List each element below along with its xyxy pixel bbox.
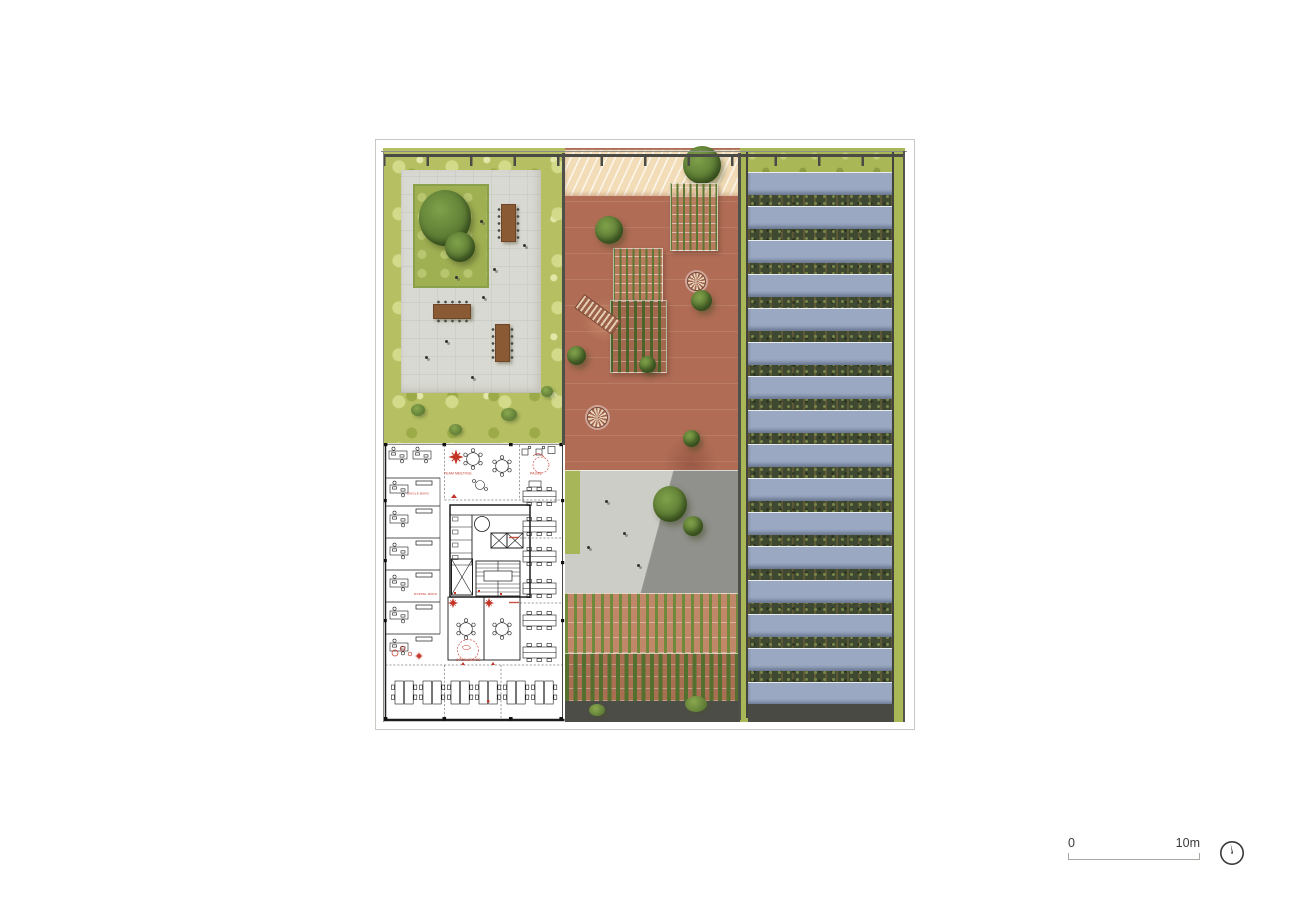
frame-beam — [738, 153, 741, 720]
zone-dashed-lines — [386, 445, 563, 719]
solar-panel-row — [748, 172, 894, 195]
person — [605, 500, 608, 503]
solar-panel-rows — [748, 172, 894, 700]
page: { "page": { "background": "#ffffff", "co… — [0, 0, 1290, 911]
solar-panel-row — [748, 648, 894, 671]
bush — [501, 408, 517, 421]
person — [523, 244, 526, 247]
spiral-stair — [687, 272, 706, 291]
green-roof-zone — [383, 148, 565, 443]
floorplan-labels: TEAM MEETING PAUSE SINGLE BÜRO DOPPEL BÜ… — [407, 472, 543, 663]
courtyard-planting — [565, 470, 580, 554]
tree — [683, 516, 703, 536]
person — [482, 296, 485, 299]
ground-courtyard — [565, 470, 740, 593]
label-open-office: OPEN OFFICE — [456, 658, 481, 662]
slab-edge — [565, 593, 740, 594]
floor-plan-zone: TEAM MEETING PAUSE SINGLE BÜRO DOPPEL BÜ… — [383, 443, 565, 722]
person — [623, 532, 626, 535]
pergola-garden — [565, 653, 740, 701]
bush — [411, 404, 425, 416]
solar-panel-row — [748, 274, 894, 297]
red-annotations — [392, 451, 549, 702]
solar-panel-row — [748, 682, 894, 705]
solar-panel-row — [748, 240, 894, 263]
building-core — [450, 505, 530, 597]
person — [480, 220, 483, 223]
facade-shadow — [748, 704, 894, 722]
slab-edge — [565, 470, 740, 471]
person — [455, 276, 458, 279]
solar-panel-row — [748, 376, 894, 399]
person — [425, 356, 428, 359]
frame-beam — [562, 153, 565, 445]
floor-plan-drawing: TEAM MEETING PAUSE SINGLE BÜRO DOPPEL BÜ… — [383, 443, 565, 722]
label-team-meeting: TEAM MEETING — [444, 472, 472, 476]
bush — [589, 704, 605, 716]
person — [637, 564, 640, 567]
solar-panel-row — [748, 614, 894, 637]
label-single-office: SINGLE BÜRO — [407, 492, 430, 496]
picnic-table — [495, 324, 510, 362]
solar-panel-row — [748, 546, 894, 569]
frame-guideline — [381, 151, 907, 152]
picnic-table — [433, 304, 471, 319]
pergola-garden — [565, 593, 740, 653]
solar-panel-row — [748, 410, 894, 433]
solar-panel-row — [748, 478, 894, 501]
picnic-table — [501, 204, 516, 242]
north-arrow-icon — [1219, 840, 1245, 866]
slab-edge — [565, 653, 740, 654]
person — [445, 340, 448, 343]
vine-trellis — [613, 248, 663, 302]
frame-beam-stubs — [383, 154, 905, 166]
frame-beam — [746, 152, 748, 718]
scale-start-label: 0 — [1068, 836, 1075, 850]
single-offices — [386, 478, 441, 641]
solar-panel-row — [748, 206, 894, 229]
frame-edge-left — [383, 151, 384, 722]
solar-panel-row — [748, 342, 894, 365]
terrace-zone — [565, 148, 740, 722]
vine-trellis — [670, 183, 718, 251]
solar-panel-row — [748, 512, 894, 535]
roof-plan: TEAM MEETING PAUSE SINGLE BÜRO DOPPEL BÜ… — [383, 148, 905, 722]
frame-beam — [892, 152, 894, 718]
tree — [639, 356, 656, 373]
spiral-stair — [587, 407, 608, 428]
person — [587, 546, 590, 549]
bush — [685, 696, 707, 712]
scale-bar-line — [1068, 853, 1200, 860]
tree — [683, 430, 700, 447]
label-pause: PAUSE — [530, 472, 543, 476]
tree — [653, 486, 687, 522]
scale-bar: 0 10m — [1068, 836, 1200, 860]
tree — [691, 290, 712, 311]
solar-panel-row — [748, 308, 894, 331]
tree — [595, 216, 623, 244]
solar-panel-row — [748, 444, 894, 467]
meeting-rooms — [448, 597, 520, 660]
solar-panel-zone — [740, 148, 905, 722]
bush — [541, 386, 553, 397]
person — [493, 268, 496, 271]
scale-end-label: 10m — [1176, 836, 1200, 850]
solar-panel-row — [748, 580, 894, 603]
person — [471, 376, 474, 379]
small-tables — [473, 446, 556, 490]
bush — [449, 424, 462, 435]
label-double-office: DOPPEL BÜRO — [414, 592, 438, 596]
frame-edge-right — [903, 151, 905, 722]
tree — [567, 346, 586, 365]
tree — [445, 232, 475, 262]
